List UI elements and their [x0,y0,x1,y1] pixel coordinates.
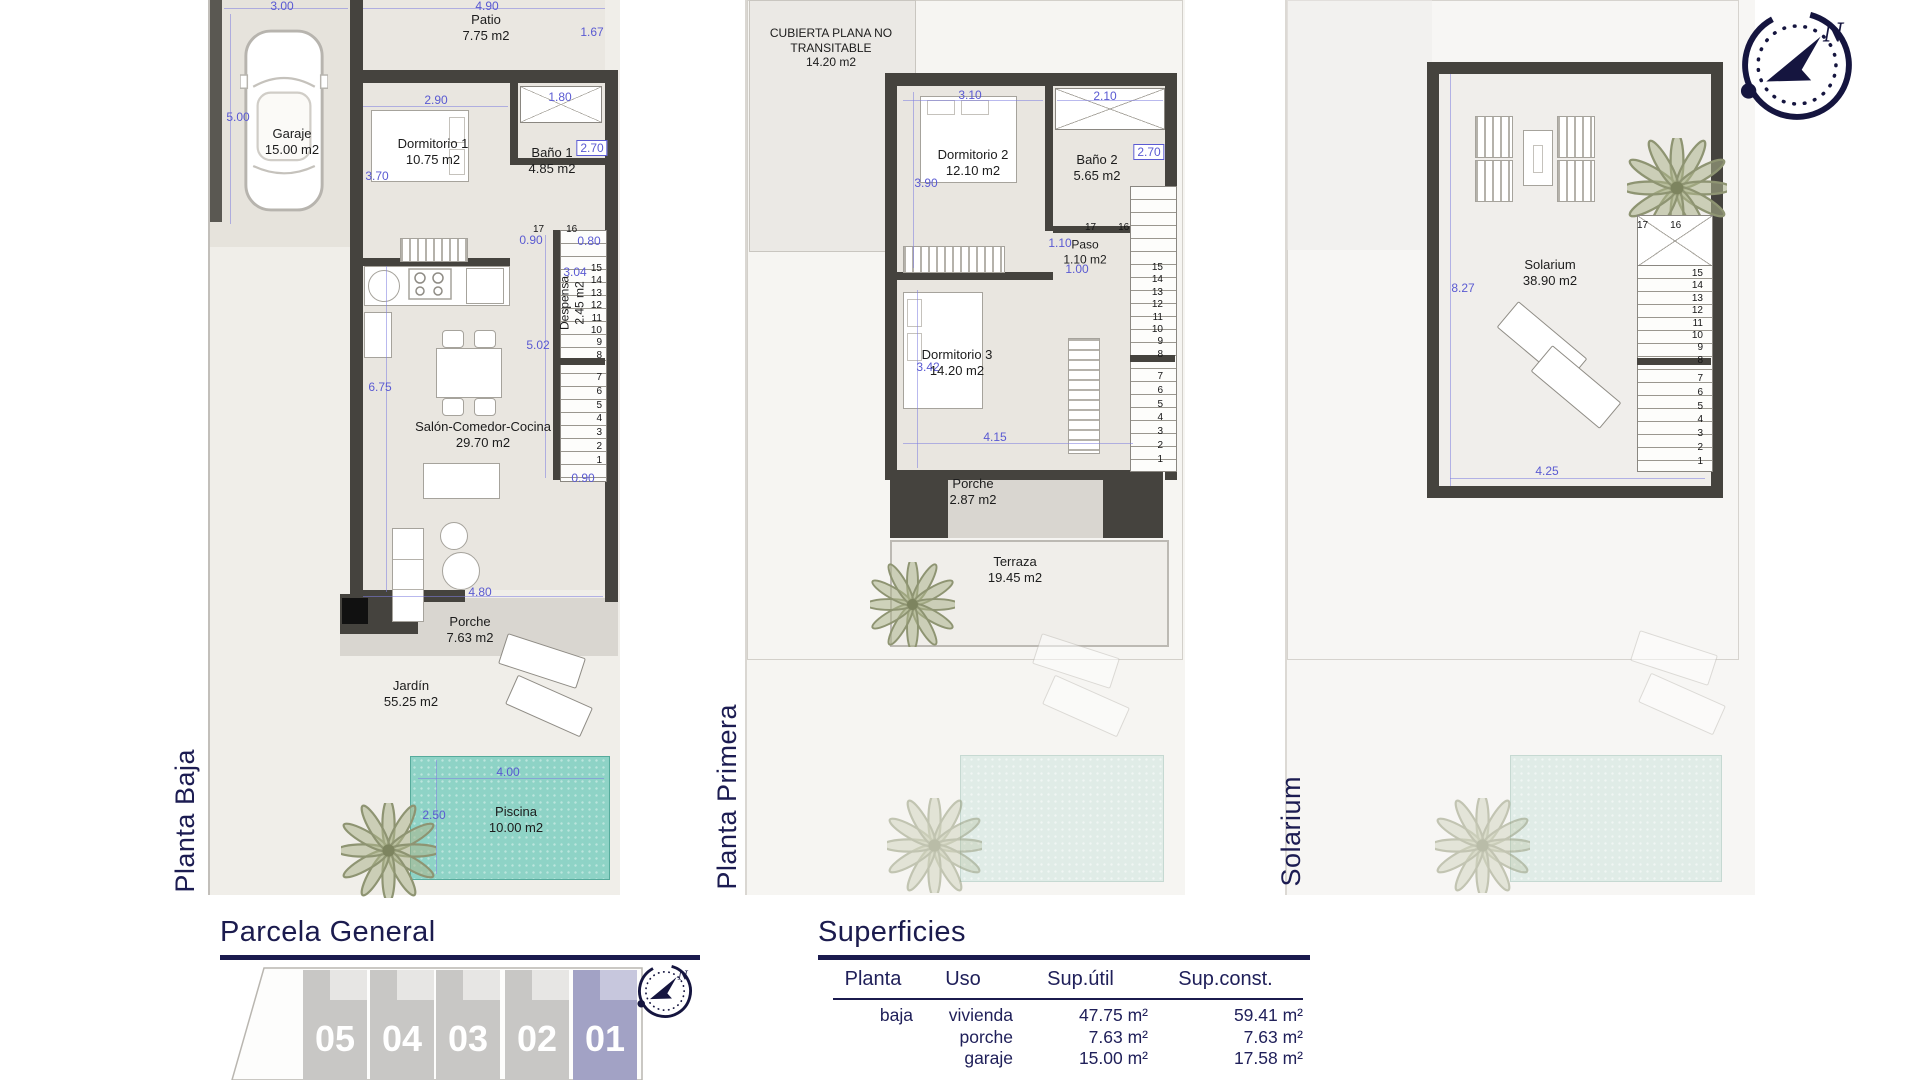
stair-number: 11 [1693,318,1703,330]
stair-number: 2 [596,440,602,454]
plot-notch [397,970,434,1000]
room-name: Garaje [272,126,311,142]
stair-number: 17 [1085,222,1096,233]
chair-graphic [474,330,496,348]
room-name: Dormitorio 1 [398,136,469,152]
stove-icon [408,268,452,300]
stair-number: 15 [591,263,602,275]
stair-number: 16 [1118,222,1129,233]
chair-graphic [442,330,464,348]
room-area: 19.45 m2 [988,570,1042,586]
room-area: 10.00 m2 [489,820,543,836]
plot-05: 05 [303,970,367,1080]
chair-graphic [474,398,496,416]
table-graphic [1523,130,1553,186]
stair-number: 16 [566,224,577,235]
table-row: porche 7.63 m² 7.63 m² [833,1029,1303,1047]
stair-numbers-lower: 7654321 [1681,372,1703,469]
stair-number: 7 [1157,370,1163,384]
compass-icon-small [636,962,694,1020]
stair-number: 3 [1157,425,1163,439]
fridge-graphic [466,268,504,304]
stair-number: 1 [1697,455,1703,469]
stair-number: 5 [1697,400,1703,414]
radiator-graphic [903,246,1005,273]
dim-patio-ancho: 4.90 [475,0,498,13]
dim-solarium-alto: 8.27 [1451,281,1474,295]
cell-planta [833,1050,913,1068]
stair-number: 4 [596,412,602,426]
room-area: 12.10 m2 [946,163,1000,179]
room-label-dormitorio2: Dormitorio 2 12.10 m2 [938,147,1009,179]
stair-number: 4 [1697,413,1703,427]
chair-graphic [1475,116,1513,158]
wall [890,470,948,538]
dim-piscina-alto: 2.50 [422,808,445,822]
stair-number: 8 [1157,349,1163,361]
room-name: Dormitorio 3 [922,347,993,363]
cell-uso: vivienda [913,1007,1013,1025]
plot-number: 05 [303,1018,367,1060]
floor-title-solarium: Solarium [1276,776,1307,887]
radiator-graphic [400,238,468,262]
dim-line [903,443,1133,444]
stair-number: 16 [1670,220,1681,231]
dim-salon-alto: 5.02 [526,338,549,352]
dim-salon-ancho: 4.80 [468,585,491,599]
cell-sup-util: 15.00 m² [1013,1050,1148,1068]
stair-numbers-top: 1716 [1637,220,1681,231]
dim-line [917,290,918,468]
room-label-bano1: Baño 1 4.85 m2 [529,145,576,177]
stair-number: 10 [591,325,602,337]
wall [342,598,368,624]
stair-numbers-lower: 7654321 [1145,370,1163,467]
room-name: Salón-Comedor-Cocina [415,419,551,435]
dim-line [386,266,387,592]
wall [897,272,1053,280]
cell-uso: garaje [913,1050,1013,1068]
plot-notch [330,970,367,1000]
stair-number: 9 [1697,342,1703,354]
dim-solarium-ancho: 4.25 [1535,464,1558,478]
room-name: Dormitorio 2 [938,147,1009,163]
dim-piscina-ancho: 4.00 [496,765,519,779]
wall [885,73,897,480]
stair-number: 4 [1157,411,1163,425]
table-header-planta: Planta [833,968,913,991]
stair-numbers-upper: 15141312111098 [1679,268,1703,367]
pool-ghost [960,755,1164,882]
stair-number: 11 [592,313,602,325]
stair-number: 1 [596,454,602,468]
wall [1427,62,1723,74]
stair-numbers-top: 1716 [1085,222,1129,233]
plot-03: 03 [436,970,500,1080]
dim-bano1-ancho: 1.80 [548,90,571,104]
floorplan-sheet: 1716 15141312111098 7654321 3.00 4.90 1.… [0,0,1920,1080]
table-header-sup-util: Sup.útil [1013,968,1148,991]
ghost-cubierta [1287,0,1432,250]
plan-solarium: 1716 15141312111098 7654321 8.27 4.25 So… [1285,0,1755,895]
superficies-underline [818,955,1310,960]
room-area: 15.00 m2 [265,142,319,158]
room-label-dormitorio3: Dormitorio 3 14.20 m2 [922,347,993,379]
room-label-bano2: Baño 2 5.65 m2 [1074,152,1121,184]
room-label-despensa: Despensa 2.45 m2 [557,276,586,330]
table-header-sup-const: Sup.const. [1148,968,1303,991]
sink-graphic [368,270,400,302]
palm-tree-graphic [1435,798,1530,893]
stair-number: 5 [1157,398,1163,412]
room-label-garaje: Garaje 15.00 m2 [265,126,319,158]
plan-planta-primera: 1716 15141312111098 7654321 3.10 2.10 3.… [745,0,1185,895]
room-label-cubierta: CUBIERTA PLANA NO TRANSITABLE 14.20 m2 [756,26,906,70]
room-label-solarium: Solarium 38.90 m2 [1523,257,1577,289]
stair-number: 3 [1697,427,1703,441]
plot-02: 02 [505,970,569,1080]
room-area: 29.70 m2 [456,435,510,451]
room-area: 1.10 m2 [1063,252,1106,267]
stair-number: 17 [1637,220,1648,231]
wall [1103,470,1163,538]
parcela-diagram: 05 04 03 02 01 [222,965,700,1080]
room-name: Paso [1071,237,1098,252]
room-name: Baño 2 [1076,152,1117,168]
chair-graphic [442,398,464,416]
room-label-salon: Salón-Comedor-Cocina 29.70 m2 [415,419,551,451]
dim-bano1-alto: 2.70 [576,140,607,156]
room-area: 4.85 m2 [529,161,576,177]
wall [363,70,605,83]
plot-01-highlighted: 01 [573,970,637,1080]
cell-sup-const: 7.63 m² [1148,1029,1303,1047]
dim-dorm1-ancho: 2.90 [424,93,447,107]
room-label-dormitorio1: Dormitorio 1 10.75 m2 [398,136,469,168]
room-label-porche: Porche 7.63 m2 [447,614,494,646]
table-row: garaje 15.00 m² 17.58 m² [833,1050,1303,1068]
compass-icon [1738,6,1856,124]
dim-dorm3-ancho: 4.15 [983,430,1006,444]
car-graphic [240,18,328,223]
dim-escalera-bajo: 0.90 [571,471,594,485]
room-label-jardin: Jardín 55.25 m2 [384,678,438,710]
stair-number: 1 [1157,453,1163,467]
stair-number: 12 [1692,305,1703,317]
stair-number: 11 [1153,312,1163,324]
wall [885,73,1177,86]
parcela-underline [220,955,700,960]
stair-number: 12 [1152,299,1163,311]
chair-graphic [1475,160,1513,202]
wall [553,230,560,480]
cell-uso: porche [913,1029,1013,1047]
palm-tree-graphic [870,562,955,647]
room-name: Porche [952,476,993,492]
stair-number: 6 [1697,386,1703,400]
palm-tree-graphic [887,798,982,893]
dim-escalera: 0.80 [577,234,600,248]
stair-number: 6 [596,385,602,399]
dim-bano2-alto: 2.70 [1133,144,1164,160]
stair-number: 13 [591,288,602,300]
room-name: Solarium [1524,257,1575,273]
room-area: 10.75 m2 [406,152,460,168]
dim-garaje-fondo: 5.00 [226,110,249,124]
dim-bano2-ancho: 2.10 [1093,89,1116,103]
floor-title-planta-baja: Planta Baja [170,749,201,893]
room-area: 38.90 m2 [1523,273,1577,289]
stair-number: 8 [1697,355,1703,367]
stair-number: 12 [591,300,602,312]
stair-number: 15 [1692,268,1703,280]
plot-notch [463,970,500,1000]
room-label-terraza: Terraza 19.45 m2 [988,554,1042,586]
room-area: 2.45 m2 [572,281,587,324]
table-row: baja vivienda 47.75 m² 59.41 m² [833,1007,1303,1025]
dim-paso: 0.90 [519,233,542,247]
stair-number: 9 [1157,336,1163,348]
dining-table-graphic [436,348,502,398]
stair-number: 6 [1157,384,1163,398]
room-name: Despensa [557,276,572,330]
dim-patio-alto: 1.67 [580,25,603,39]
parcela-title: Parcela General [220,916,436,949]
stair-number: 9 [596,337,602,349]
room-name: CUBIERTA PLANA NO TRANSITABLE [756,26,906,55]
dim-dorm1-alto: 3.70 [365,169,388,183]
table-header-uso: Uso [913,968,1013,991]
dim-dorm2-alto: 3.90 [914,176,937,190]
room-name: Baño 1 [531,145,572,161]
stair-number: 3 [596,426,602,440]
stair-number: 2 [1157,439,1163,453]
stair-number: 14 [1692,280,1703,292]
room-area: 7.63 m2 [447,630,494,646]
cell-sup-util: 47.75 m² [1013,1007,1148,1025]
stair-number: 13 [1692,293,1703,305]
room-area: 14.20 m2 [930,363,984,379]
room-name: Piscina [495,804,537,820]
room-name: Patio [471,12,501,28]
superficies-table: Planta Uso Sup.útil Sup.const. baja vivi… [833,968,1303,1080]
wall [1427,486,1723,498]
cell-sup-util: 7.63 m² [1013,1029,1148,1047]
stair-number: 7 [596,371,602,385]
dim-garaje-ancho: 3.00 [270,0,293,13]
room-label-patio: Patio 7.75 m2 [463,12,510,44]
room-label-porche: Porche 2.87 m2 [950,476,997,508]
plot-number: 04 [370,1018,434,1060]
cell-planta: baja [833,1007,913,1025]
plot-number: 02 [505,1018,569,1060]
room-name: Porche [449,614,490,630]
shelf-graphic [392,528,424,622]
stair-number: 13 [1152,287,1163,299]
stair-number: 14 [591,275,602,287]
room-label-piscina: Piscina 10.00 m2 [489,804,543,836]
room-name: Jardín [393,678,429,694]
sofa-graphic [423,463,500,499]
wall [210,0,222,222]
chair-graphic [1557,160,1595,202]
plot-notch [532,970,569,1000]
dim-salon-alto2: 6.75 [368,380,391,394]
cabinet-graphic [364,312,392,358]
room-label-paso: Paso 1.10 m2 [1063,237,1106,266]
room-area: 7.75 m2 [463,28,510,44]
cell-sup-const: 59.41 m² [1148,1007,1303,1025]
wall [510,83,518,163]
plot-number: 03 [436,1018,500,1060]
stair-numbers-lower: 7654321 [584,371,602,468]
chair-graphic [1557,116,1595,158]
room-area: 5.65 m2 [1074,168,1121,184]
stair-numbers-upper: 15141312111098 [1143,262,1163,361]
stair-number: 2 [1697,441,1703,455]
dim-line [1450,74,1451,486]
room-area: 14.20 m2 [806,55,856,70]
floor-title-planta-primera: Planta Primera [712,704,743,890]
stair-number: 10 [1692,330,1703,342]
stair-number: 5 [596,399,602,413]
wall [1427,62,1439,498]
dim-dorm2-ancho: 3.10 [958,88,981,102]
plot-number: 01 [573,1018,637,1060]
cell-sup-const: 17.58 m² [1148,1050,1303,1068]
room-name: Terraza [993,554,1036,570]
wall [350,0,363,602]
armchair-graphic [440,522,468,550]
table-header-row: Planta Uso Sup.útil Sup.const. [833,968,1303,1000]
plan-planta-baja: 1716 15141312111098 7654321 3.00 4.90 1.… [208,0,620,895]
wall [1045,86,1053,231]
stair-number: 14 [1152,274,1163,286]
table-row-gap [833,1072,1303,1080]
plot-04: 04 [370,970,434,1080]
superficies-title: Superficies [818,916,966,949]
room-area: 2.87 m2 [950,492,997,508]
wardrobe-graphic [1068,338,1100,454]
stair-number: 7 [1697,372,1703,386]
dim-line [1450,478,1705,479]
cell-planta [833,1029,913,1047]
stair-number: 8 [596,350,602,362]
plot-notch [600,970,637,1000]
room-area: 55.25 m2 [384,694,438,710]
pool-ghost [1510,755,1722,882]
stair-number: 10 [1152,324,1163,336]
stair-number: 15 [1152,262,1163,274]
